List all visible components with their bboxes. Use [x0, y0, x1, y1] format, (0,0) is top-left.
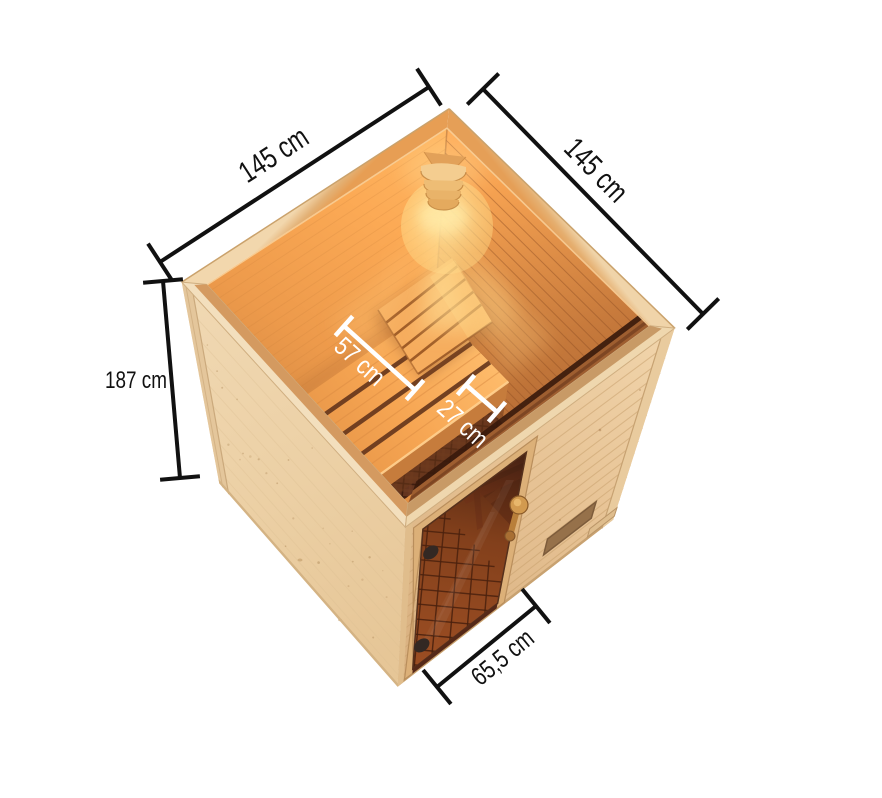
svg-text:187 cm: 187 cm [105, 367, 167, 394]
